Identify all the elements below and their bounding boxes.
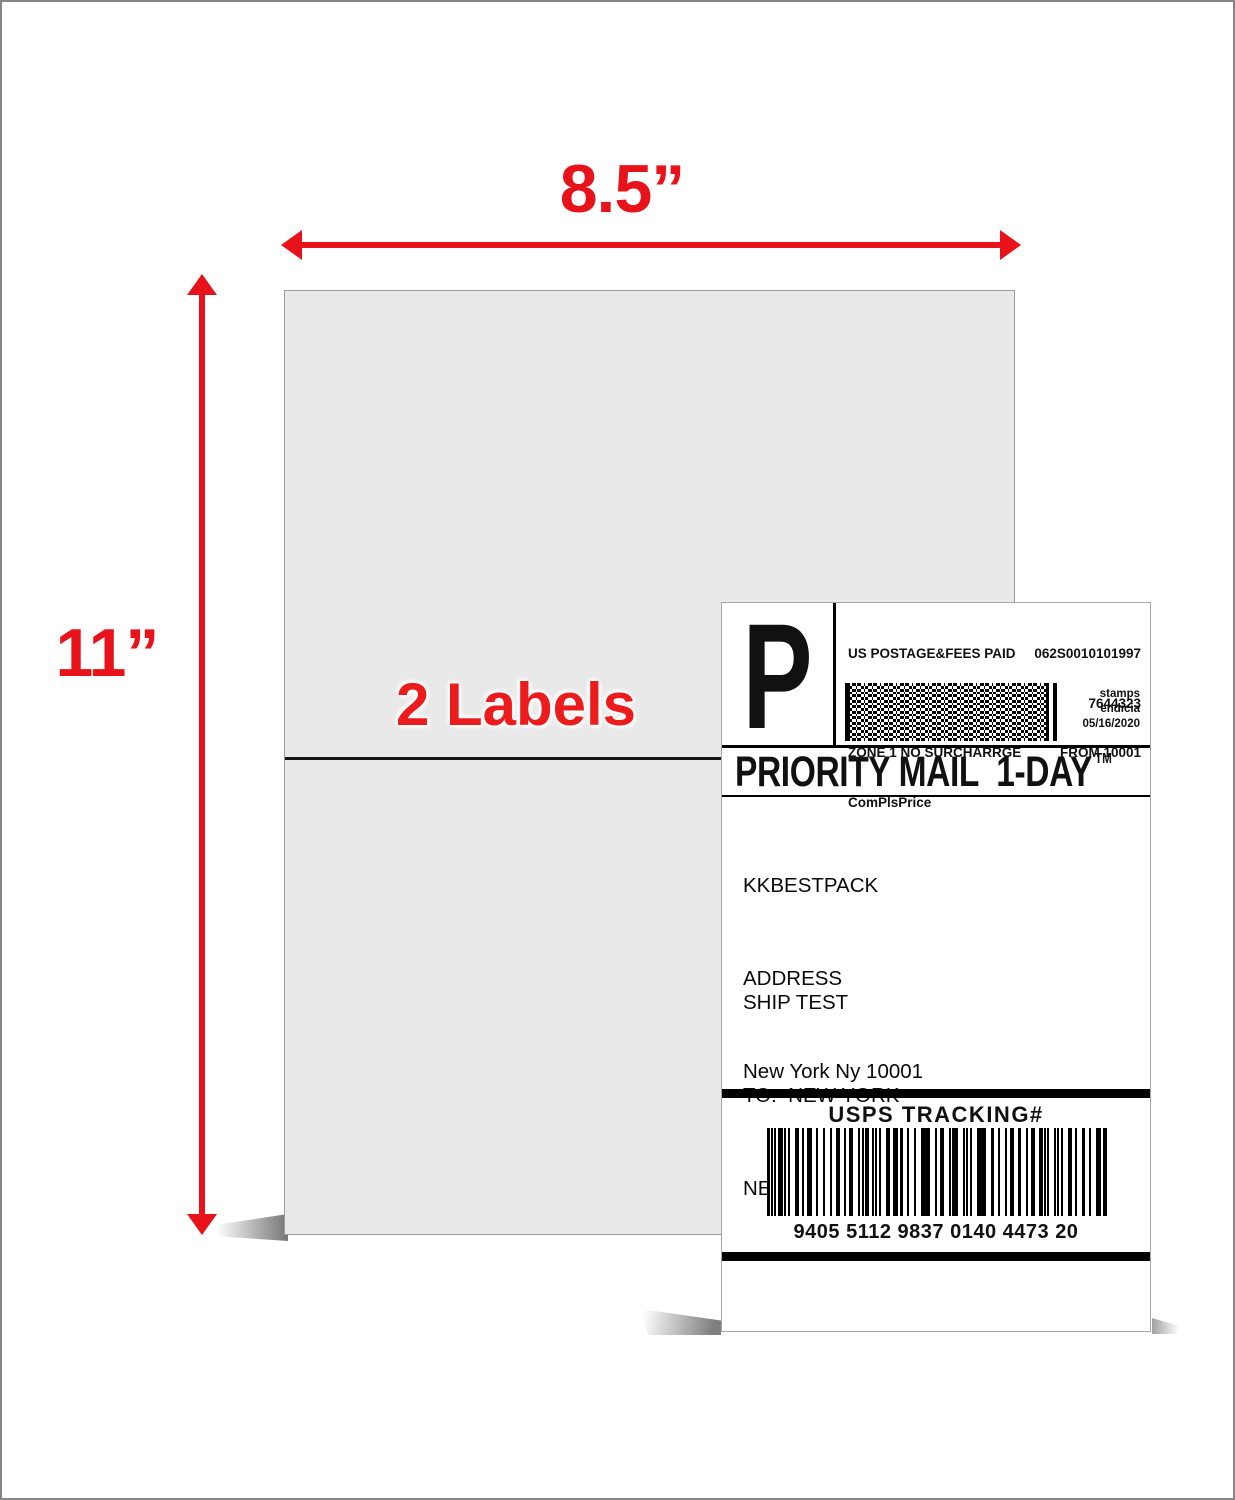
tracking-section-bar [722,1089,1150,1098]
arrow-up-head-icon [187,274,217,295]
label-shadow [1152,1318,1182,1334]
shipping-label: P US POSTAGE&FEES PAID 4 LB PRIORITY MAI… [721,602,1151,1332]
postage-2d-barcode-icon [845,683,1057,741]
tracking-header: USPS TRACKING# [722,1102,1150,1128]
sheet-divider-line [285,757,721,760]
recipient-line: SHIP TEST [743,987,951,1018]
sheet-width-dimension: 8.5” [502,150,742,228]
tracking-number: 9405 5112 9837 0140 4473 20 [722,1221,1150,1244]
provider-line: 05/16/2020 [1082,717,1140,732]
sheet-height-dimension: 11” [32,614,182,692]
tracking-section-bar [722,1252,1150,1261]
sheet-shadow [208,1214,288,1241]
product-illustration: 8.5” 11” 2 Labels P US POSTAGE&FEES PAID… [0,0,1235,1500]
arrow-left-head-icon [281,230,302,260]
usps-tracking-barcode-icon [767,1128,1107,1216]
meta-line: 062S0010101997 [1034,646,1141,663]
postage-divider-line [833,603,836,745]
postage-line: US POSTAGE&FEES PAID [848,646,1021,663]
label-shadow [640,1306,721,1335]
arrow-right-head-icon [1000,230,1021,260]
provider-line: stamps [1082,687,1140,702]
postage-provider: stamps endicia 05/16/2020 [1082,687,1140,732]
trademark-mark: TM [1095,750,1112,767]
label-section-line [722,795,1150,797]
provider-line: endicia [1082,702,1140,717]
sender-line: KKBESTPACK [743,870,923,901]
service-title: PRIORITY MAIL 1-DAY TM [735,749,1112,795]
postage-letter: P [739,607,817,745]
sheet-caption: 2 Labels [292,670,740,739]
